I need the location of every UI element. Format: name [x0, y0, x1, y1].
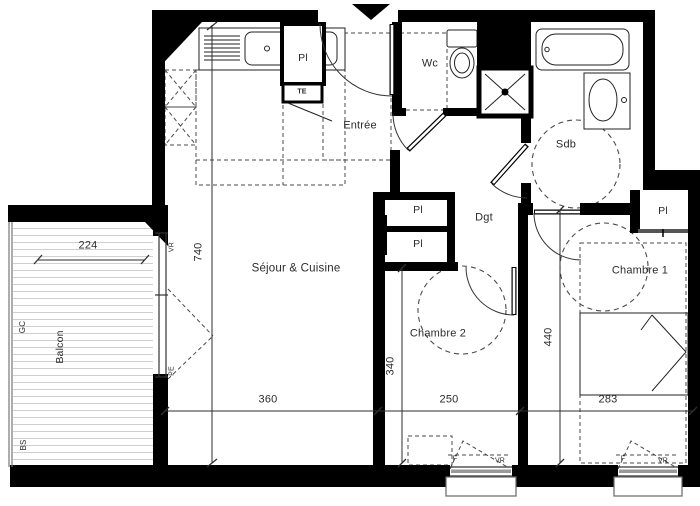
room-label-balcon: Balcon: [55, 330, 66, 363]
annotation-chambre1-window-f: F: [621, 456, 625, 463]
wc-door: [393, 114, 445, 150]
room-label-sdb: Sdb: [556, 140, 576, 151]
kitchen-closets: [282, 24, 332, 121]
chambre1-door: [534, 212, 581, 260]
technical-shaft: [479, 68, 531, 116]
chambre2-window: [446, 467, 516, 496]
annotation-gc: GC: [19, 321, 27, 333]
bathtub: [536, 29, 629, 70]
balcony-bay-window: [155, 233, 168, 377]
bed: [580, 313, 688, 395]
chambre2-unit: [408, 436, 452, 465]
dim-chambre2-width: 250: [440, 395, 459, 406]
room-label-dgt: Dgt: [475, 213, 493, 224]
closet-label-hall-pl-2: Pl: [413, 239, 423, 250]
toilet: [447, 30, 477, 78]
floorplan-drawing: [0, 0, 700, 506]
chambre1-closet-front: [638, 229, 688, 237]
room-label-wc: Wc: [422, 59, 438, 70]
wc-zone: [400, 33, 447, 110]
annotation-chambre1-window-vr: VR: [658, 458, 668, 465]
closet-label-hall-pl-1: Pl: [413, 205, 423, 216]
room-label-chambre1: Chambre 1: [612, 266, 668, 277]
dim-sejour-width: 360: [259, 395, 278, 406]
room-label-chambre2: Chambre 2: [410, 329, 466, 340]
dim-balcony-width: 224: [79, 241, 98, 252]
annotation-balcony-pe: PE: [169, 366, 176, 376]
closet-label-kitchen-pl: Pl: [298, 53, 308, 64]
chambre2-door: [466, 267, 514, 315]
closet-label-te: TE: [297, 89, 306, 96]
dim-chambre1-width: 283: [599, 395, 618, 406]
entrance-arrow-icon: [352, 4, 390, 20]
kitchen-unit-x-boxes: [165, 70, 196, 145]
room-label-sejour: Séjour & Cuisine: [252, 263, 341, 275]
closet-label-chambre1-pl: Pl: [658, 206, 668, 217]
annotation-balcony-vr: VR: [169, 242, 176, 252]
turning-circle-sdb: [532, 120, 620, 208]
dim-sejour-depth: 740: [194, 243, 205, 262]
annotation-bs: BS: [20, 439, 28, 450]
annotation-chambre2-window-vr: VR: [495, 458, 505, 465]
balcony-railing: [9, 222, 12, 467]
annotation-chambre2-window-f: F: [453, 456, 457, 463]
chambre1-window: [614, 467, 682, 496]
dim-chambre1-depth: 440: [544, 328, 555, 347]
floorplan: Séjour & Cuisine Entrée Wc Sdb Dgt Chamb…: [0, 0, 700, 506]
washbasin: [584, 73, 630, 129]
dim-chambre2-depth: 340: [386, 357, 397, 376]
room-label-entree: Entrée: [343, 121, 377, 132]
